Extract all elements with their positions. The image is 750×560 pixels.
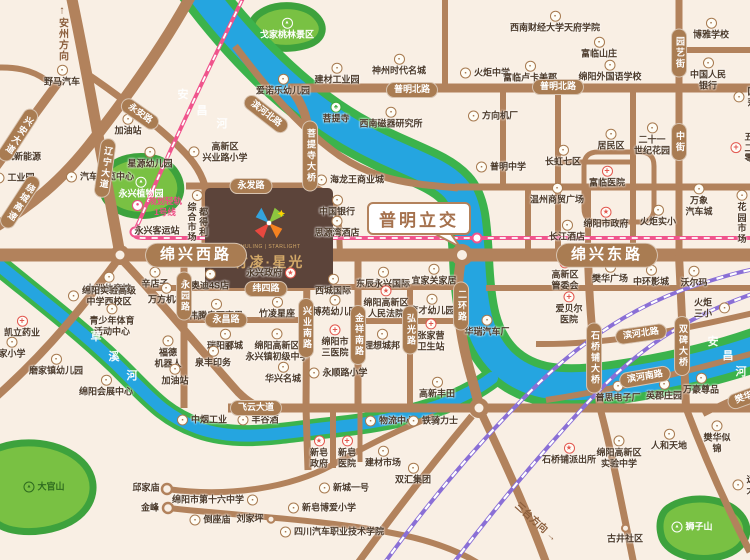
metro-station [473, 234, 482, 243]
map-graphics [0, 0, 750, 560]
metro-station [131, 228, 140, 237]
metro-label-line1: 规划轻轨 [148, 196, 182, 207]
metro-label-line2: 1号线 [148, 207, 182, 218]
location-map: ZHULING | STARLIGHT 竹凌·星光 普明立交 ● 规划轻轨 1号… [0, 0, 750, 560]
property-logo-star-icon [250, 204, 288, 242]
property-name-cn: 竹凌·星光 [234, 252, 305, 272]
interchange-callout: 普明立交 [367, 202, 471, 235]
property-name-en: ZHULING | STARLIGHT [237, 244, 300, 250]
metro-icon: ● [132, 200, 143, 211]
metro-plan-label: ● 规划轻轨 1号线 [148, 196, 182, 217]
road-end-rings [162, 484, 173, 513]
roads [0, 0, 750, 560]
property-block: ZHULING | STARLIGHT 竹凌·星光 [205, 188, 333, 288]
